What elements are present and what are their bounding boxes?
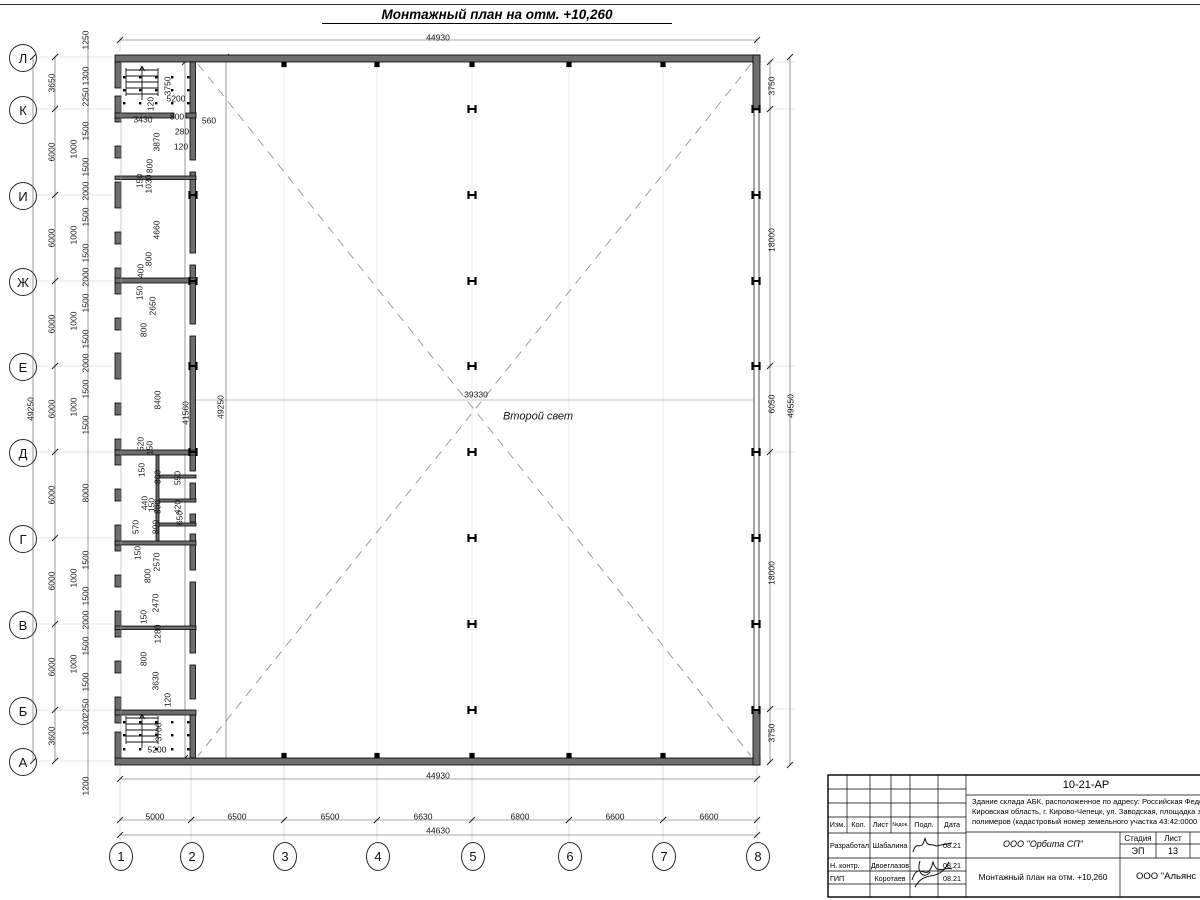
- axis-bubble-col-4: 4: [366, 842, 390, 871]
- dim-label: 2250: [82, 699, 91, 718]
- dim-label: 6000: [48, 486, 57, 505]
- dim-label: 1500: [82, 244, 91, 263]
- axis-bubble-col-6: 6: [558, 842, 582, 871]
- project-desc-line: полимеров (кадастровый номер земельного …: [972, 817, 1197, 826]
- axis-extension-lines: [35, 36, 795, 841]
- axis-bubble-row-К: К: [9, 96, 37, 124]
- dim-label: 3600: [48, 727, 57, 746]
- sig-role: ГИП: [830, 874, 844, 883]
- dim-label: 3700: [155, 723, 164, 742]
- dim-label: 800: [154, 500, 163, 514]
- doc-number: 10-21-АР: [966, 779, 1200, 791]
- dim-label: 3750: [768, 724, 777, 743]
- dim-label: 49250: [27, 397, 36, 421]
- dim-label: 400: [137, 264, 146, 278]
- dim-label: 6630: [414, 813, 433, 822]
- sheets-value: 1: [1190, 846, 1200, 856]
- dim-label: 2650: [149, 297, 158, 316]
- dim-label: 650: [176, 511, 185, 525]
- axis-bubble-row-Е: Е: [9, 353, 37, 381]
- dim-label: 49250: [217, 395, 226, 419]
- dim-label: 49550: [787, 394, 796, 418]
- dim-label: 1200: [82, 777, 91, 796]
- axis-bubble-row-Ж: Ж: [9, 268, 37, 296]
- dim-label: 1500: [82, 637, 91, 656]
- second-light-label: Второй свет: [503, 413, 573, 422]
- dim-label: 2000: [82, 268, 91, 287]
- dim-label: 150: [138, 463, 147, 477]
- drawing-sheet: Монтажный план на отм. +10,260: [0, 0, 1200, 900]
- dim-label: 1300: [82, 67, 91, 86]
- sig-role: Разработал: [830, 841, 869, 850]
- tb-drawing-name: Монтажный план на отм. +10,260: [966, 872, 1120, 882]
- dim-label: 570: [132, 520, 141, 534]
- dim-label: 1000: [70, 655, 79, 674]
- dim-label: 800: [154, 470, 163, 484]
- dim-label: 1000: [70, 569, 79, 588]
- dim-label: 120: [174, 143, 188, 152]
- dim-label: 3630: [152, 672, 161, 691]
- dim-label: 41560: [182, 401, 191, 425]
- tb-header-podp: Подп.: [910, 820, 938, 829]
- dim-label: 6000: [48, 143, 57, 162]
- dim-label: 6600: [606, 813, 625, 822]
- dim-label: 18000: [768, 561, 777, 585]
- dim-label: 1300: [82, 717, 91, 736]
- axis-bubble-row-Л: Л: [9, 44, 37, 72]
- hall-grid-lines: [284, 62, 663, 758]
- dim-label: 2000: [82, 611, 91, 630]
- tb-header-kol: Кол.: [847, 820, 870, 829]
- dim-label: 800: [144, 569, 153, 583]
- dim-label: 6600: [700, 813, 719, 822]
- dim-label: 2000: [82, 354, 91, 373]
- dim-label: 2470: [152, 594, 161, 613]
- diagonal-brace-lines: [198, 64, 751, 756]
- dim-label: 1500: [82, 208, 91, 227]
- sheet-value: 13: [1156, 846, 1190, 856]
- sig-name: Двоеглазов: [870, 861, 910, 870]
- dim-label: 3430: [134, 116, 153, 125]
- dim-label: 800: [140, 323, 149, 337]
- sig-role: Н. контр.: [830, 861, 860, 870]
- dim-label: 8000: [82, 484, 91, 503]
- dim-label: 1500: [82, 294, 91, 313]
- dim-label: 1250: [82, 31, 91, 50]
- dim-label: 1000: [70, 226, 79, 245]
- dim-label: 1500: [82, 587, 91, 606]
- design-org: ООО "Орбита СП": [966, 839, 1120, 849]
- dim-label: 280: [175, 128, 189, 137]
- dim-label: 1500: [82, 380, 91, 399]
- dim-label: 1500: [82, 416, 91, 435]
- dim-label: 1500: [82, 330, 91, 349]
- dim-label: 1280: [154, 625, 163, 644]
- dim-label: 800: [152, 520, 161, 534]
- project-desc-line: Кировская область, г. Кирово-Чепецк, ул.…: [972, 807, 1200, 816]
- dim-label: 5200: [167, 95, 186, 104]
- sig-date: 08.21: [938, 861, 966, 870]
- dim-label: 2000: [82, 182, 91, 201]
- axis-bubble-col-3: 3: [273, 842, 297, 871]
- axis-bubble-col-8: 8: [746, 842, 770, 871]
- dim-label: 3750: [768, 77, 777, 96]
- dim-label: 44930: [426, 34, 450, 43]
- dim-label: 1000: [70, 140, 79, 159]
- dim-label: 18000: [768, 228, 777, 252]
- dim-label: 39330: [464, 391, 488, 400]
- axis-bubble-col-5: 5: [461, 842, 485, 871]
- column-symbols: [188, 62, 760, 758]
- dim-label: 2570: [153, 553, 162, 572]
- dim-label: 44630: [426, 827, 450, 836]
- axis-bubble-row-И: И: [9, 182, 37, 210]
- stair-symbol-top: [126, 66, 158, 100]
- sig-name: Шабалина: [870, 841, 910, 850]
- dim-label: 2250: [82, 88, 91, 107]
- dim-label: 5000: [146, 813, 165, 822]
- axis-bubble-row-В: В: [9, 611, 37, 639]
- sheet-label: Лист: [1156, 834, 1190, 843]
- dim-label: 1500: [82, 551, 91, 570]
- dim-label: 6000: [48, 572, 57, 591]
- dim-label: 6000: [48, 658, 57, 677]
- dim-label: 120: [164, 693, 173, 707]
- dim-label: 800: [170, 113, 184, 122]
- dim-label: 6000: [48, 315, 57, 334]
- axis-bubble-col-2: 2: [180, 842, 204, 871]
- dim-label: 6500: [321, 813, 340, 822]
- dim-label: 800: [146, 159, 155, 173]
- axis-bubble-row-Б: Б: [9, 697, 37, 725]
- dim-label: 6800: [511, 813, 530, 822]
- dim-label: 6050: [768, 395, 777, 414]
- dim-label: 560: [202, 117, 216, 126]
- dim-label: 1500: [82, 673, 91, 692]
- axis-bubble-row-А: А: [9, 748, 37, 776]
- sheets-label: Ли: [1190, 834, 1200, 843]
- project-desc-line: Здание склада АБК, расположенное по адре…: [972, 797, 1200, 806]
- dim-label: 8400: [154, 391, 163, 410]
- dim-label: 5200: [148, 746, 167, 755]
- dim-label: 800: [145, 252, 154, 266]
- axis-bubble-row-Г: Г: [9, 525, 37, 553]
- stage-value: ЭП: [1120, 846, 1156, 856]
- client-org: ООО "Альянс: [1136, 871, 1196, 882]
- dim-label: 120: [147, 97, 156, 111]
- axis-bubble-col-7: 7: [652, 842, 676, 871]
- tb-header-ndok: №док.: [891, 822, 910, 828]
- tb-header-list: Лист: [870, 820, 891, 829]
- dim-label: 1500: [82, 158, 91, 177]
- dim-label: 6000: [48, 400, 57, 419]
- dim-label: 150: [140, 610, 149, 624]
- dim-label: 150: [136, 286, 145, 300]
- dim-label: 150: [134, 546, 143, 560]
- dim-label: 1030: [145, 175, 154, 194]
- sig-date: 08.21: [938, 874, 966, 883]
- dim-label: 6000: [48, 229, 57, 248]
- dim-label: 3650: [48, 74, 57, 93]
- sig-date: 08.21: [938, 841, 966, 850]
- dim-label: 1500: [82, 122, 91, 141]
- dim-label: 1000: [70, 398, 79, 417]
- dim-label: 4660: [153, 221, 162, 240]
- axis-bubble-col-1: 1: [109, 842, 133, 871]
- tb-header-data: Дата: [938, 820, 966, 829]
- dim-label: 44930: [426, 772, 450, 781]
- tb-header-izm: Изм.: [828, 820, 847, 829]
- dim-label: 800: [140, 652, 149, 666]
- axis-bubble-row-Д: Д: [9, 439, 37, 467]
- dim-label: 1000: [70, 312, 79, 331]
- stage-label: Стадия: [1120, 834, 1156, 843]
- dim-label: 3870: [153, 133, 162, 152]
- sig-name: Коротаев: [870, 874, 910, 883]
- dim-label: 150: [146, 441, 155, 455]
- dim-label: 550: [174, 471, 183, 485]
- dim-label: 6500: [228, 813, 247, 822]
